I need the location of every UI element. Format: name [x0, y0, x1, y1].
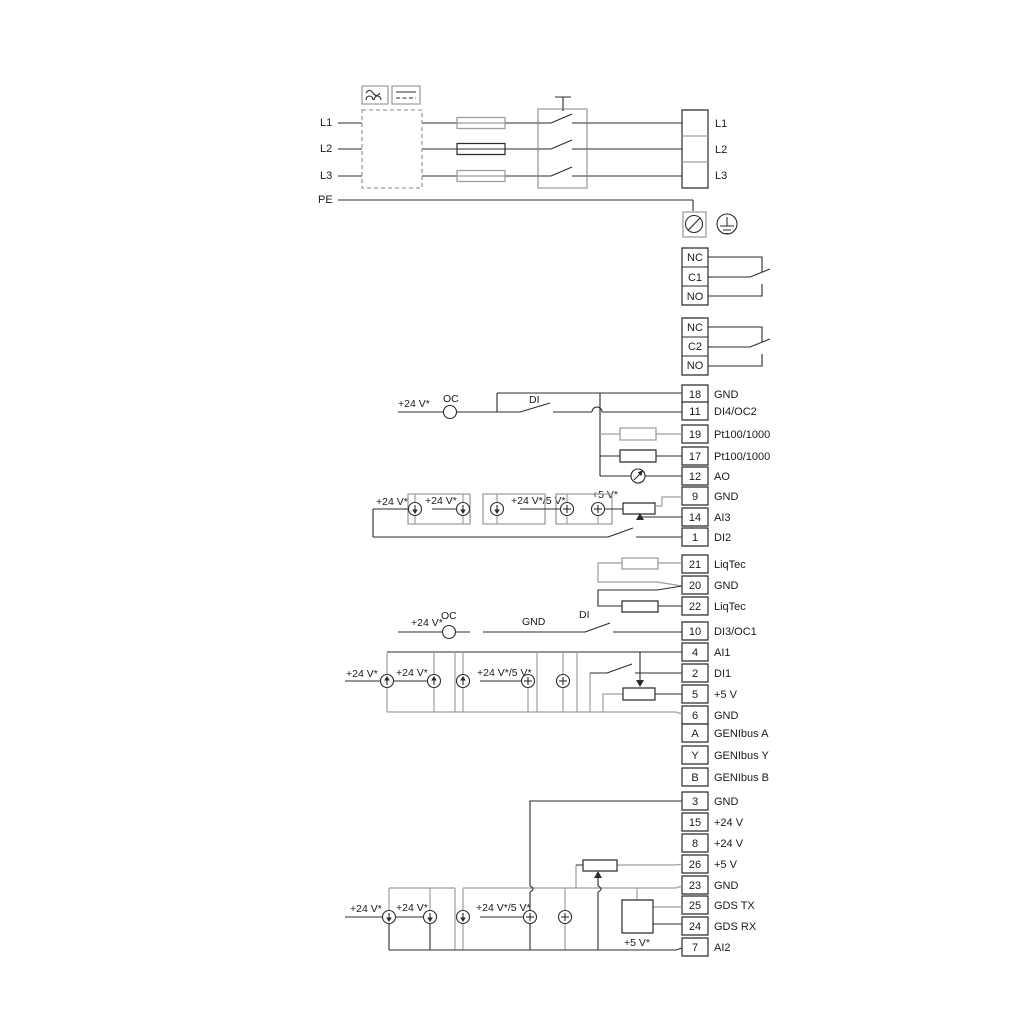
terminal-label: Pt100/1000 [714, 451, 770, 463]
current-source-icon [457, 675, 470, 688]
terminal-label: GENIbus A [714, 728, 769, 740]
pin: 20 [689, 580, 701, 592]
di4-di-label: DI [529, 394, 540, 406]
terminal-row-15: 15+24 V [682, 813, 744, 831]
ai1-potentiometer [623, 688, 655, 700]
terminal-label: GND [714, 491, 739, 503]
voltage-source-icon [524, 911, 537, 924]
terminal-label: AO [714, 471, 730, 483]
ai1-plus24-b-label: +24 V* [396, 667, 428, 679]
open-collector-icon [444, 406, 457, 419]
ai3-circuit: +24 V* +24 V* +24 V*/5 V* +5 V* [373, 489, 682, 537]
pin: 11 [689, 406, 700, 418]
label-l3-in: L3 [320, 170, 332, 182]
ai3-plus24-5v-label: +24 V*/5 V* [511, 495, 566, 507]
terminal-label: Pt100/1000 [714, 429, 770, 441]
di3-di-label: DI [579, 609, 590, 621]
ai1-plus24-a-label: +24 V* [346, 668, 378, 680]
terminal-label: LiqTec [714, 559, 746, 571]
voltage-source-icon [557, 675, 570, 688]
gds-plus5-label: +5 V* [624, 937, 650, 949]
mains-wires [338, 123, 693, 211]
terminal-row-9: 9GND [682, 487, 739, 505]
pin: 12 [689, 471, 701, 483]
ai3-plus5-label: +5 V* [592, 489, 618, 501]
terminal-row-Y: YGENIbus Y [682, 746, 769, 764]
terminal-row-20: 20GND [682, 576, 739, 594]
terminal-label: GND [714, 389, 739, 401]
pin: 14 [689, 512, 701, 524]
pin: 23 [689, 880, 701, 892]
liqtec-sensor-22 [622, 601, 658, 612]
terminal-label: AI3 [714, 512, 731, 524]
pin: A [691, 728, 699, 740]
di4-plus24-label: +24 V* [398, 398, 430, 410]
pot-wiper-arrow [594, 871, 602, 878]
di3-gnd-label: GND [522, 616, 546, 628]
pin: 21 [689, 559, 701, 571]
ai2-circuit: +24 V* +24 V* +24 V*/5 V* +5 V* [345, 801, 682, 950]
ai2-plus24-5v-label: +24 V*/5 V* [476, 902, 531, 914]
relay1-c1: C1 [688, 272, 702, 284]
label-l1-in: L1 [320, 117, 332, 129]
label-l3-out: L3 [715, 170, 727, 182]
terminal-label: GDS TX [714, 900, 755, 912]
terminal-label: DI1 [714, 668, 731, 680]
terminal-row-21: 21LiqTec [682, 555, 746, 573]
liqtec-sensor-21 [622, 558, 658, 569]
label-pe-in: PE [318, 194, 333, 206]
terminal-row-25: 25GDS TX [682, 896, 755, 914]
pin: 4 [692, 647, 698, 659]
terminal-row-18: 18GND [682, 385, 739, 403]
terminal-row-24: 24GDS RX [682, 917, 757, 935]
relay2-c2: C2 [688, 341, 702, 353]
terminal-label: +24 V [714, 817, 744, 829]
terminal-label: GND [714, 796, 739, 808]
pin: 25 [689, 900, 701, 912]
ai1-circuit: +24 V* +24 V* +24 V*/5 V* [345, 652, 682, 714]
pin: 10 [689, 626, 701, 638]
pin: 5 [692, 689, 698, 701]
terminal-row-1: 1DI2 [682, 528, 731, 546]
ac-wave-glyph [366, 91, 381, 101]
terminal-label: +5 V [714, 859, 738, 871]
pin: 18 [689, 389, 701, 401]
di3-plus24-label: +24 V* [411, 617, 443, 629]
label-l2-in: L2 [320, 143, 332, 155]
current-source-icon [424, 911, 437, 924]
wiring-diagram-page: L1 L2 L3 PE L1 L2 L3 [0, 0, 1024, 1024]
terminal-row-B: BGENIbus B [682, 768, 769, 786]
voltage-source-icon [592, 503, 605, 516]
relay2-nc: NC [687, 322, 703, 334]
di4-oc-label: OC [443, 393, 459, 405]
current-source-icon [428, 675, 441, 688]
terminal-label: DI2 [714, 532, 731, 544]
terminal-row-7: 7AI2 [682, 938, 731, 956]
label-l2-out: L2 [715, 144, 727, 156]
terminal-row-8: 8+24 V [682, 834, 744, 852]
relay2-section: NC C2 NO [682, 318, 770, 375]
voltage-source-icon [561, 503, 574, 516]
pin: 3 [692, 796, 698, 808]
gds-sensor-box [622, 900, 653, 933]
current-source-icon [381, 675, 394, 688]
terminal-label: +5 V [714, 689, 738, 701]
liqtec-21-wiring [598, 563, 682, 586]
pt100-17-sensor [620, 450, 656, 462]
pin: B [691, 772, 698, 784]
pin: 8 [692, 838, 698, 850]
relay1-no: NO [687, 291, 704, 303]
terminal-label: +24 V [714, 838, 744, 850]
pin: Y [691, 750, 699, 762]
relay1-section: NC C1 NO [682, 248, 770, 305]
terminal-row-17: 17Pt100/1000 [682, 447, 770, 465]
terminal-row-11: 11DI4/OC2 [682, 402, 757, 420]
ai2-potentiometer [583, 860, 617, 871]
terminal-row-22: 22LiqTec [682, 597, 746, 615]
ai3-plus24-b-label: +24 V* [425, 495, 457, 507]
di4-circuit: +24 V* OC DI [398, 393, 682, 483]
pin: 9 [692, 491, 698, 503]
current-source-icon [409, 503, 422, 516]
current-source-icon [491, 503, 504, 516]
terminal-label: GND [714, 580, 739, 592]
wiper-hop [598, 886, 601, 892]
pin: 7 [692, 942, 698, 954]
di3-oc-label: OC [441, 610, 457, 622]
current-source-icon [457, 911, 470, 924]
terminal-row-6: 6GND [682, 706, 739, 724]
current-source-icon [383, 911, 396, 924]
terminal-label: LiqTec [714, 601, 746, 613]
terminal-row-10: 10DI3/OC1 [682, 622, 757, 640]
relay2-contact [708, 327, 770, 366]
filter-box [362, 110, 422, 188]
terminal-label: GENIbus B [714, 772, 769, 784]
terminal-label: DI4/OC2 [714, 406, 757, 418]
relay2-no: NO [687, 360, 704, 372]
terminal-row-23: 23GND [682, 876, 739, 894]
terminal-row-3: 3GND [682, 792, 739, 810]
relay1-contact [708, 257, 770, 296]
terminal-label: AI1 [714, 647, 731, 659]
terminal-row-14: 14AI3 [682, 508, 731, 526]
terminal-label: GND [714, 710, 739, 722]
relay1-nc: NC [687, 252, 703, 264]
terminal-row-A: AGENIbus A [682, 724, 769, 742]
terminal-row-26: 26+5 V [682, 855, 738, 873]
gnd3-hop [530, 886, 533, 892]
terminal-row-19: 19Pt100/1000 [682, 425, 770, 443]
open-collector-icon [443, 626, 456, 639]
mains-input-section: L1 L2 L3 PE L1 L2 L3 [318, 86, 737, 237]
disconnect-contacts [538, 114, 587, 176]
terminal-label: GDS RX [714, 921, 757, 933]
label-l1-out: L1 [715, 118, 727, 130]
terminal-label: AI2 [714, 942, 731, 954]
liqtec-circuit [598, 558, 682, 612]
pin: 26 [689, 859, 701, 871]
terminal-row-4: 4AI1 [682, 643, 731, 661]
pin: 2 [692, 668, 698, 680]
pot-wiper-arrow [636, 680, 644, 687]
pin: 15 [689, 817, 701, 829]
voltage-source-icon [559, 911, 572, 924]
ai3-pot-gnd-loop [655, 497, 682, 506]
pin: 1 [692, 532, 698, 544]
terminal-label: DI3/OC1 [714, 626, 757, 638]
ai2-plus24-a-label: +24 V* [350, 903, 382, 915]
terminal-row-5: 5+5 V [682, 685, 738, 703]
pin: 24 [689, 921, 701, 933]
di3-circuit: +24 V* OC GND DI [398, 609, 682, 639]
pin: 6 [692, 710, 698, 722]
pin: 17 [689, 451, 701, 463]
terminal-row-2: 2DI1 [682, 664, 731, 682]
di4-wiring [398, 393, 682, 476]
pin: 22 [689, 601, 701, 613]
ai2-plus24-b-label: +24 V* [396, 902, 428, 914]
wiring-diagram: L1 L2 L3 PE L1 L2 L3 [0, 0, 1024, 1024]
mains-terminal-block [682, 110, 708, 188]
terminal-row-12: 12AO [682, 467, 730, 485]
pt100-19-sensor [620, 428, 656, 440]
voltage-source-icon [522, 675, 535, 688]
dc-icon [392, 86, 420, 104]
current-source-icon [457, 503, 470, 516]
ai3-potentiometer [623, 503, 655, 514]
terminal-label: GND [714, 880, 739, 892]
terminal-strip: 18GND 11DI4/OC2 19Pt100/1000 17Pt100/100… [682, 385, 770, 956]
terminal-label: GENIbus Y [714, 750, 769, 762]
ai3-plus24-a-label: +24 V* [376, 496, 408, 508]
pin: 19 [689, 429, 701, 441]
